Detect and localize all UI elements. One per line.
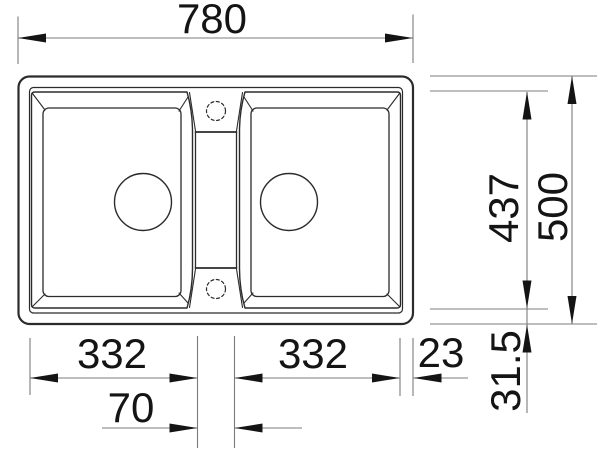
- arrow-70-left: [170, 424, 198, 433]
- right-bowl-bevels: [244, 94, 400, 307]
- divider-wall-edges: [196, 132, 237, 268]
- dim-text-437: 437: [480, 173, 527, 243]
- right-bowl-floor: [251, 108, 389, 297]
- left-bowl-floor: [43, 108, 181, 297]
- arrow-437-bottom: [523, 281, 532, 309]
- center-divider: [190, 93, 243, 308]
- dim-bowls: 332 332 23 70: [30, 329, 468, 448]
- sink-dimension-drawing: 780 437 500 31.5 332 332 23 70: [0, 0, 610, 450]
- dim-text-500: 500: [529, 172, 576, 242]
- dim-text-23: 23: [418, 329, 465, 376]
- dim-text-780: 780: [177, 0, 247, 42]
- left-bowl-bevels: [33, 94, 189, 307]
- arrow-70-right: [235, 424, 263, 433]
- divider-deck-slants: [190, 93, 243, 308]
- dim-text-332-left: 332: [77, 330, 147, 377]
- arrow-500-top: [568, 76, 577, 104]
- sink: [19, 77, 414, 325]
- dim-text-332-right: 332: [278, 330, 348, 377]
- tap-hole-bottom: [207, 280, 226, 299]
- arrow-437-top: [523, 92, 532, 120]
- sink-outer-rim: [19, 77, 414, 325]
- arrow-500-bottom: [568, 296, 577, 324]
- arrow-332R-right: [372, 374, 400, 383]
- arrow-780-left: [18, 34, 46, 43]
- dim-overall-width: 780: [18, 0, 413, 64]
- dim-text-70: 70: [108, 384, 155, 431]
- arrow-780-right: [385, 34, 413, 43]
- ext-lines-right-rim: [400, 338, 413, 396]
- right-drain-circle: [261, 174, 318, 231]
- ext-lines-center-web: [198, 336, 235, 448]
- arrow-332L-right: [170, 374, 198, 383]
- technical-drawing-canvas: 780 437 500 31.5 332 332 23 70: [0, 0, 610, 450]
- arrow-332L-left: [30, 374, 58, 383]
- dim-text-31-5: 31.5: [482, 330, 529, 412]
- arrow-332R-left: [235, 374, 263, 383]
- left-bowl-rim: [32, 92, 193, 308]
- right-bowl-rim: [240, 92, 401, 308]
- divider-deck-edges: [196, 132, 237, 268]
- tap-hole-top: [207, 102, 226, 121]
- left-drain-circle: [115, 174, 172, 231]
